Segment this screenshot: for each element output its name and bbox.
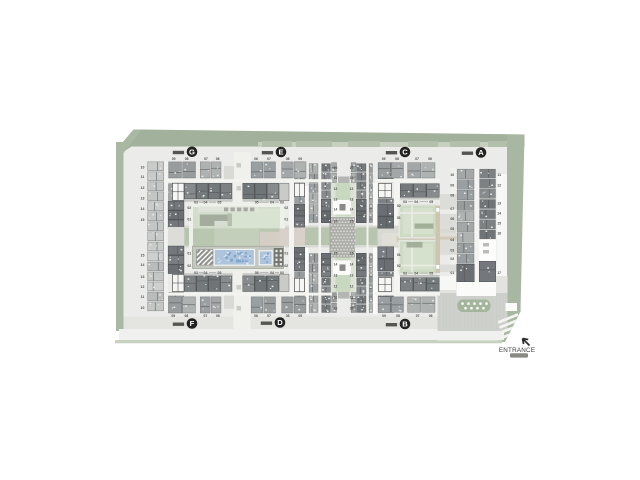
svg-text:12: 12 [141, 285, 145, 289]
svg-text:10: 10 [141, 165, 145, 169]
svg-text:04: 04 [270, 271, 274, 275]
svg-text:01: 01 [284, 252, 288, 256]
svg-text:10: 10 [450, 173, 454, 177]
svg-text:03: 03 [403, 271, 407, 275]
svg-text:13: 13 [334, 274, 338, 278]
svg-text:16: 16 [497, 231, 501, 235]
svg-text:01: 01 [284, 218, 288, 222]
svg-text:03: 03 [194, 271, 198, 275]
svg-text:05: 05 [218, 200, 222, 204]
svg-text:15: 15 [334, 219, 338, 223]
svg-text:15: 15 [350, 252, 354, 256]
svg-text:05: 05 [218, 271, 222, 275]
svg-text:04: 04 [204, 271, 208, 275]
svg-text:06: 06 [216, 314, 220, 318]
svg-text:A: A [478, 148, 484, 157]
svg-text:09: 09 [382, 157, 386, 161]
svg-text:03: 03 [403, 200, 407, 204]
svg-text:01: 01 [187, 252, 191, 256]
svg-text:05: 05 [255, 271, 259, 275]
svg-text:12: 12 [334, 187, 338, 191]
svg-text:02: 02 [187, 264, 191, 268]
svg-text:10: 10 [334, 306, 338, 310]
svg-text:01: 01 [450, 271, 454, 275]
svg-text:14: 14 [141, 263, 145, 267]
svg-text:09: 09 [298, 314, 302, 318]
svg-text:02: 02 [284, 264, 288, 268]
svg-text:06: 06 [216, 157, 220, 161]
svg-text:12: 12 [497, 184, 501, 188]
svg-text:08: 08 [450, 194, 454, 198]
svg-text:G: G [189, 147, 195, 156]
svg-text:07: 07 [204, 314, 208, 318]
svg-text:08: 08 [396, 314, 400, 318]
svg-text:08: 08 [185, 314, 189, 318]
svg-text:F: F [190, 319, 195, 328]
svg-text:04: 04 [270, 200, 274, 204]
svg-text:05: 05 [429, 200, 433, 204]
svg-text:15: 15 [497, 221, 501, 225]
svg-text:15: 15 [141, 218, 145, 222]
svg-text:12: 12 [350, 285, 354, 289]
svg-text:02: 02 [187, 206, 191, 210]
svg-text:10: 10 [141, 306, 145, 310]
svg-text:13: 13 [350, 274, 354, 278]
svg-text:11: 11 [497, 173, 501, 177]
svg-text:01: 01 [397, 253, 401, 257]
svg-text:02: 02 [397, 204, 401, 208]
svg-text:14: 14 [334, 263, 338, 267]
svg-text:01: 01 [397, 216, 401, 220]
svg-text:15: 15 [350, 219, 354, 223]
svg-text:13: 13 [141, 275, 145, 279]
svg-text:05: 05 [450, 227, 454, 231]
svg-text:08: 08 [286, 314, 290, 318]
svg-text:13: 13 [497, 202, 501, 206]
svg-text:11: 11 [334, 296, 338, 300]
svg-text:06: 06 [450, 217, 454, 221]
svg-text:04: 04 [414, 200, 418, 204]
svg-text:09: 09 [298, 157, 302, 161]
svg-text:06: 06 [429, 314, 433, 318]
svg-text:03: 03 [194, 200, 198, 204]
svg-text:02: 02 [450, 257, 454, 261]
svg-text:05: 05 [255, 200, 259, 204]
svg-text:07: 07 [450, 207, 454, 211]
svg-text:10: 10 [350, 166, 354, 170]
svg-text:12: 12 [141, 186, 145, 190]
svg-text:14: 14 [350, 208, 354, 212]
svg-text:07: 07 [267, 314, 271, 318]
svg-text:06: 06 [254, 314, 258, 318]
svg-text:11: 11 [350, 176, 354, 180]
svg-text:01: 01 [187, 218, 191, 222]
svg-text:08: 08 [185, 157, 189, 161]
svg-text:13: 13 [350, 198, 354, 202]
svg-text:08: 08 [395, 157, 399, 161]
svg-text:B: B [402, 320, 408, 329]
svg-text:04: 04 [414, 271, 418, 275]
svg-text:15: 15 [141, 254, 145, 258]
svg-text:15: 15 [334, 252, 338, 256]
svg-text:02: 02 [397, 264, 401, 268]
svg-text:E: E [278, 148, 283, 157]
svg-text:08: 08 [286, 157, 290, 161]
svg-text:13: 13 [141, 196, 145, 200]
svg-text:03: 03 [280, 271, 284, 275]
svg-text:04: 04 [204, 200, 208, 204]
svg-text:10: 10 [350, 306, 354, 310]
svg-text:07: 07 [267, 157, 271, 161]
svg-text:07: 07 [204, 157, 208, 161]
svg-text:14: 14 [350, 263, 354, 267]
svg-text:11: 11 [350, 296, 354, 300]
svg-text:06: 06 [428, 157, 432, 161]
svg-text:07: 07 [416, 314, 420, 318]
svg-text:12: 12 [334, 285, 338, 289]
svg-text:12: 12 [350, 187, 354, 191]
svg-text:03: 03 [280, 200, 284, 204]
svg-text:02: 02 [284, 206, 288, 210]
svg-text:04: 04 [450, 238, 454, 242]
svg-text:C: C [402, 148, 408, 157]
svg-text:11: 11 [141, 175, 145, 179]
svg-text:13: 13 [334, 198, 338, 202]
svg-text:09: 09 [450, 184, 454, 188]
svg-text:09: 09 [171, 314, 175, 318]
svg-text:09: 09 [382, 314, 386, 318]
svg-text:05: 05 [429, 271, 433, 275]
svg-text:10: 10 [334, 166, 338, 170]
svg-text:14: 14 [497, 211, 501, 215]
svg-text:ENTRANCE: ENTRANCE [499, 347, 535, 354]
svg-text:D: D [277, 318, 283, 327]
svg-text:03: 03 [450, 249, 454, 253]
svg-text:14: 14 [141, 207, 145, 211]
svg-text:14: 14 [334, 208, 338, 212]
svg-text:09: 09 [172, 157, 176, 161]
svg-text:11: 11 [141, 295, 145, 299]
svg-text:11: 11 [334, 176, 338, 180]
svg-text:17: 17 [497, 271, 501, 275]
svg-text:07: 07 [415, 157, 419, 161]
svg-text:06: 06 [254, 157, 258, 161]
